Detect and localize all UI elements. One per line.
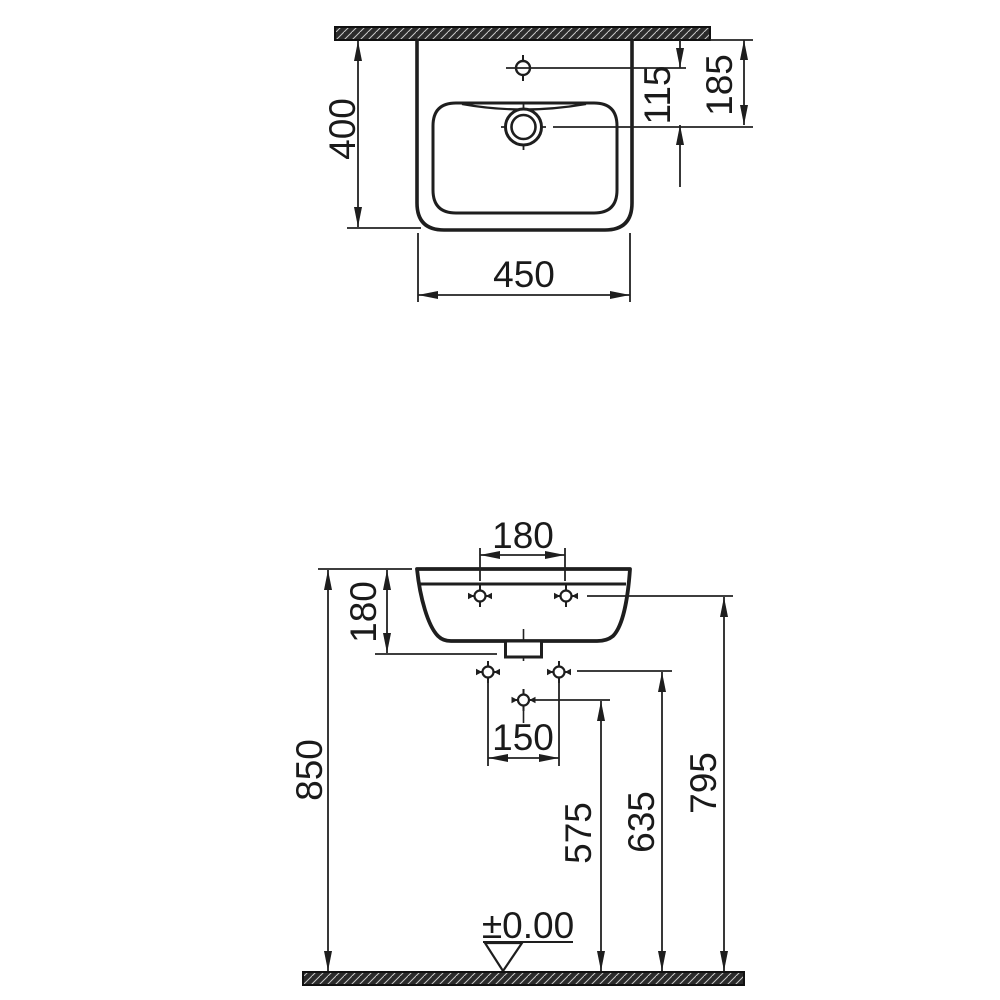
drain-connection-mark [512, 689, 536, 711]
dim-635: 635 [621, 672, 662, 971]
dim-185: 185 [699, 40, 744, 125]
fixing-hole-mark-right [547, 661, 571, 683]
drain-outlet [506, 641, 542, 657]
datum-triangle-icon [485, 943, 522, 971]
dim-115: 115 [637, 40, 680, 187]
dim-450-label: 450 [493, 254, 555, 295]
faucet-hole [501, 104, 546, 150]
dim-150-label: 150 [492, 717, 554, 758]
wall-section-hatch [335, 27, 710, 40]
dim-115-label: 115 [637, 66, 678, 125]
datum-label: ±0.00 [482, 905, 574, 946]
fixing-hole-mark-left [476, 661, 500, 683]
dim-180-top-label: 180 [492, 515, 554, 556]
dim-450: 450 [418, 233, 630, 302]
washbasin-technical-drawing: 400 450 115 185 [0, 0, 1000, 1000]
dim-400: 400 [322, 41, 421, 228]
dim-400-label: 400 [322, 98, 363, 160]
drawing-canvas: 400 450 115 185 [0, 0, 1000, 1000]
dim-850-label: 850 [289, 739, 330, 801]
dim-795: 795 [683, 597, 724, 971]
dim-575-label: 575 [558, 802, 599, 864]
dim-635-label: 635 [621, 791, 662, 853]
dim-185-label: 185 [699, 54, 740, 116]
top-view: 400 450 115 185 [322, 27, 753, 302]
front-view: 180 180 850 150 575 635 [289, 515, 744, 985]
dim-180-left-label: 180 [343, 581, 384, 643]
datum-symbol: ±0.00 [482, 905, 574, 971]
dim-795-label: 795 [683, 752, 724, 814]
floor-section-hatch [303, 972, 744, 985]
